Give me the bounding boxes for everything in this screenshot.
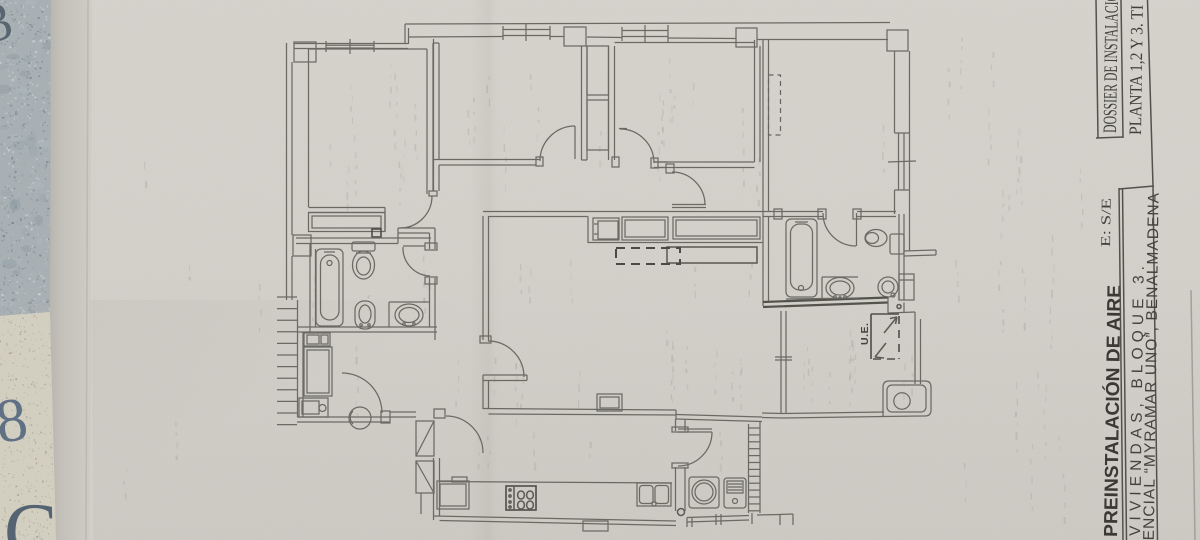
svg-text:PLANTA 1,2 Y 3. TI: PLANTA 1,2 Y 3. TI [1125, 5, 1147, 135]
svg-text:E: S/E: E: S/E [1098, 198, 1114, 247]
svg-text:DOSSIER DE INSTALACIÓ: DOSSIER DE INSTALACIÓ [1099, 0, 1123, 133]
svg-text:U.E.: U.E. [859, 323, 871, 345]
svg-text:C: C [4, 488, 57, 540]
